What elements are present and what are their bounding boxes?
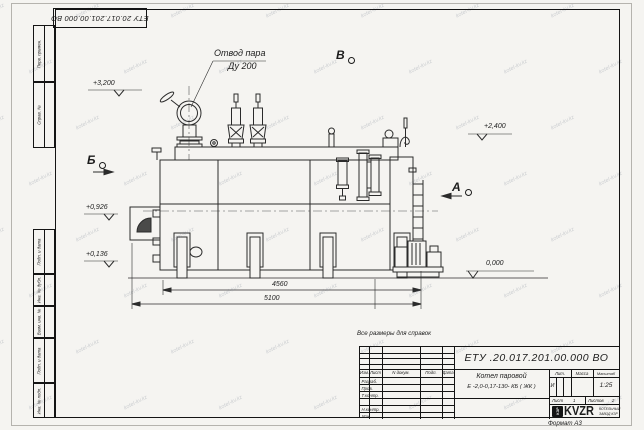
field-split [44, 339, 54, 382]
doc-number: ЕТУ .20.017.201.00.000 ВО [454, 347, 619, 369]
field-label: Подп. и дата [37, 238, 42, 265]
kvzr-logo-sub1: КОТЕЛЬНЫЙ [599, 407, 620, 411]
col-doc: N докум. [382, 370, 420, 375]
product-name-line2: Е -2,0-0,17-130- КБ ( ЖК ) [454, 381, 549, 393]
elevation-2400: +2,400 [484, 123, 506, 130]
field-split [44, 230, 54, 273]
section-a-circle-icon [465, 189, 472, 196]
field-split [44, 26, 54, 81]
row-tkontr: Т.контр. [362, 393, 379, 398]
section-v-circle-icon [348, 57, 355, 64]
steam-outlet-callout-line1: Отвод пара [214, 48, 265, 58]
field-label: Подп. и дата [37, 347, 42, 374]
watermark-text: kotel-kv.kz [0, 227, 6, 244]
elevation-0926: +0,926 [86, 204, 108, 211]
drawing-sheet: kotel-kv.kzkotel-kv.kzkotel-kv.kzkotel-k… [0, 0, 644, 430]
col-date: Дата [442, 370, 454, 375]
field-split [44, 275, 54, 305]
top-doc-number: ЕТУ 20.017.201.00.000 ВО [51, 14, 149, 23]
field-inv-dubl: Инв. № дубл. [33, 274, 55, 306]
field-perv-primen: Перв. примен. [33, 25, 55, 82]
kvzr-logo-sub2: ЗАВОД КЗР [599, 412, 618, 416]
format-label: Формат А3 [548, 420, 582, 427]
col-izm: Изм. [360, 370, 369, 375]
row-utv: Утв. [362, 414, 372, 419]
elevation-0136: +0,136 [86, 251, 108, 258]
field-split [44, 83, 54, 147]
kvzr-monogram-text: КЗР [555, 407, 559, 415]
dimension-5100: 5100 [264, 295, 280, 302]
steam-outlet-callout-line2: Ду 200 [228, 61, 256, 71]
scale-value: 1:25 [593, 382, 619, 389]
section-label-b: Б [87, 153, 96, 167]
elevation-0000: 0,000 [486, 260, 504, 267]
watermark-text: kotel-kv.kz [0, 3, 6, 20]
elevation-3200: +3,200 [93, 80, 115, 87]
row-prov: Пров. [362, 386, 373, 391]
mass-label: Масса [571, 371, 593, 376]
sheet-label: Лист [552, 398, 563, 403]
field-sprav-no: Справ. № [33, 82, 55, 148]
col-sign: Подп. [420, 370, 442, 375]
sheet-value: 1 [573, 398, 575, 403]
field-vzam-inv: Взам. инв. № [33, 306, 55, 338]
col-list: Лист [369, 370, 382, 375]
top-doc-number-box: ЕТУ 20.017.201.00.000 ВО [53, 8, 147, 28]
field-label: Взам. инв. № [37, 309, 42, 336]
section-label-v: В [336, 48, 345, 62]
field-label: Инв. № подл. [37, 387, 42, 414]
reference-note: Все размеры для справок [357, 330, 431, 337]
field-split [44, 384, 54, 417]
sheets-label: Листов [588, 398, 604, 403]
lit-label: Лит. [549, 371, 571, 376]
field-podp-data-1: Подп. и дата [33, 229, 55, 274]
watermark-text: kotel-kv.kz [0, 115, 6, 132]
title-block: Изм. Лист N докум. Подп. Дата Разраб. Пр… [359, 346, 620, 418]
kvzr-monogram-icon: КЗР [552, 406, 563, 417]
field-label: Инв. № дубл. [37, 277, 42, 303]
field-label: Справ. № [37, 105, 42, 125]
section-label-a: А [452, 180, 461, 194]
scale-label: Масштаб [593, 371, 619, 376]
section-b-circle-icon [99, 162, 106, 169]
watermark-text: kotel-kv.kz [0, 339, 6, 356]
kvzr-logo-text: KVZR [564, 404, 594, 418]
lit-value: И [549, 383, 556, 389]
field-label: Перв. примен. [37, 39, 42, 68]
field-split [44, 307, 54, 337]
row-nkontr: Н.контр. [362, 407, 380, 412]
field-podp-data-2: Подп. и дата [33, 338, 55, 383]
sheets-value: 2 [612, 398, 614, 403]
field-inv-podl: Инв. № подл. [33, 383, 55, 418]
row-razrab: Разраб. [362, 379, 378, 384]
dimension-4560: 4560 [272, 281, 288, 288]
